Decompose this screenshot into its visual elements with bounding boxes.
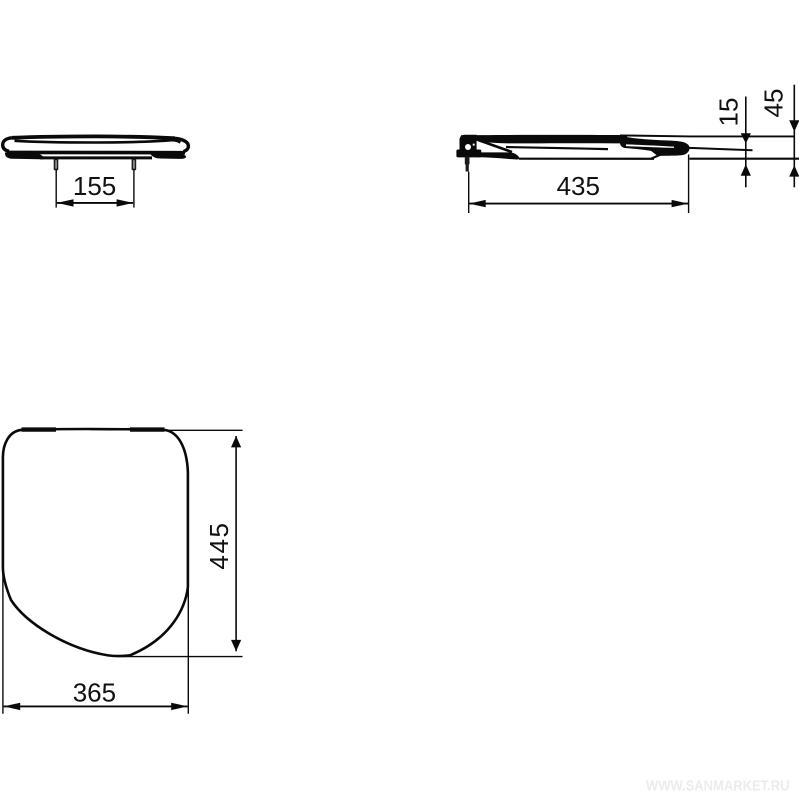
- svg-text:15: 15: [714, 98, 744, 127]
- svg-text:WWW.SANMARKET.RU: WWW.SANMARKET.RU: [646, 778, 790, 795]
- svg-text:45: 45: [759, 89, 789, 118]
- svg-text:365: 365: [73, 677, 116, 707]
- svg-text:435: 435: [557, 171, 600, 201]
- svg-text:445: 445: [204, 521, 234, 569]
- svg-text:155: 155: [73, 171, 116, 201]
